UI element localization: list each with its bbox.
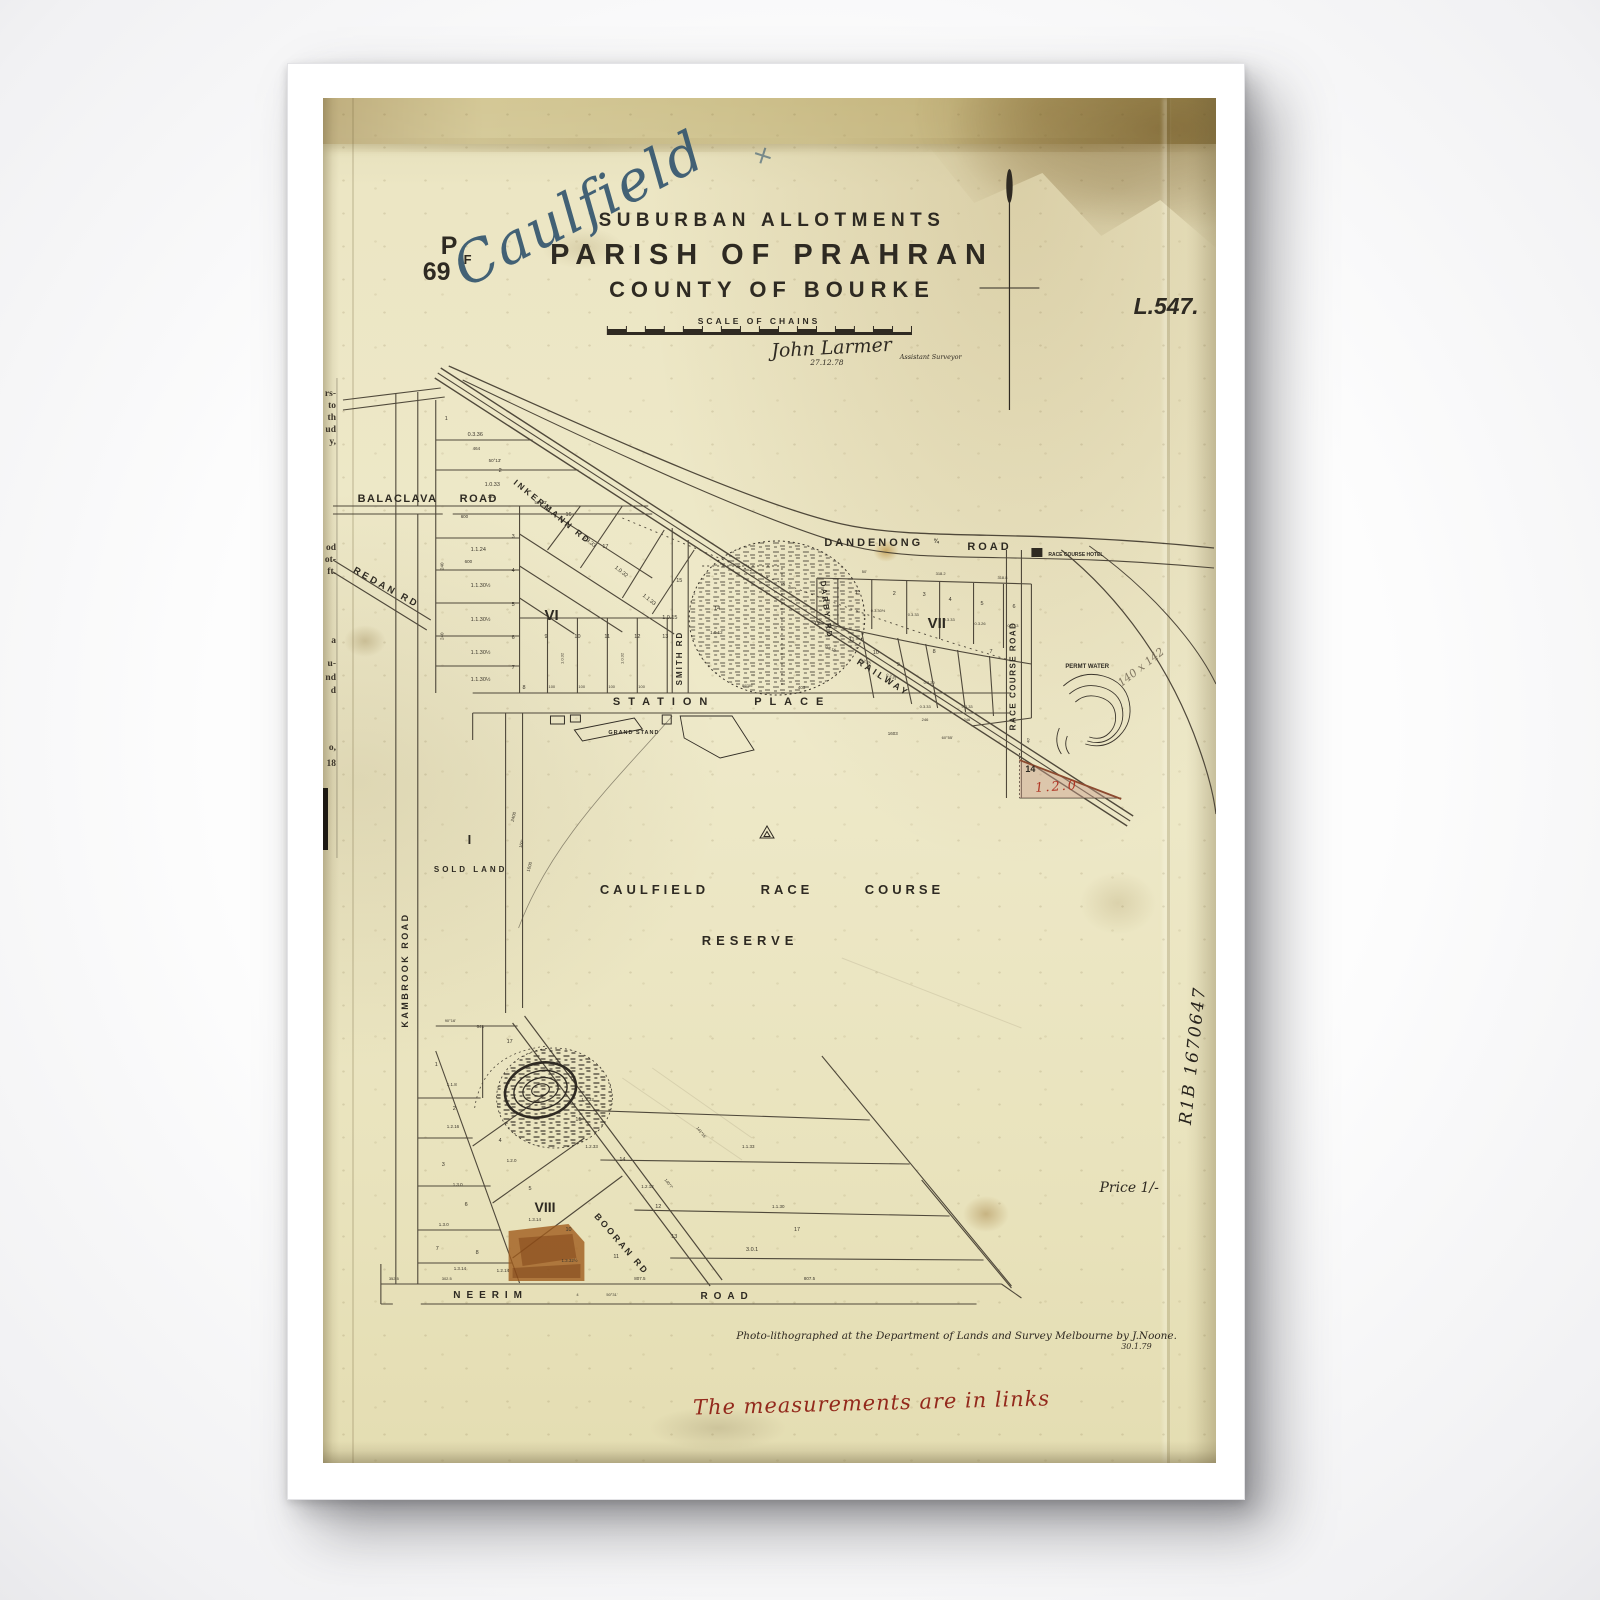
hotel-building	[1031, 548, 1042, 557]
lot-marker: 7	[512, 665, 515, 671]
road-race-course: RACE COURSE ROAD	[1008, 622, 1017, 731]
lot-marker: 100	[578, 684, 585, 689]
lot-marker: 1	[445, 416, 448, 422]
lot-marker: 1.1.30½	[471, 616, 491, 623]
lot-marker: 1.3.0	[453, 1182, 463, 1187]
litho-date: 30.1.79	[1121, 1342, 1151, 1351]
lot-marker: 11	[613, 1254, 619, 1260]
road-inkerman: INKERMANN RD	[512, 477, 593, 546]
scale-bar-segment	[721, 329, 740, 333]
lot-marker: 2400	[510, 811, 518, 822]
margin-text-fragments: rs-tothudy,odot-ft.au-nddo,18	[325, 389, 337, 769]
margin-fragment: o,	[329, 743, 336, 753]
lot-marker: 14	[714, 606, 720, 612]
lot-marker: 2	[453, 1106, 456, 1112]
lot-marker: 1.1.8	[447, 1082, 457, 1087]
price-note: Price 1/-	[1099, 1180, 1160, 1196]
margin-fragment: nd	[325, 673, 336, 683]
lot-marker: 50°31'	[606, 1292, 617, 1297]
lot-marker: 8	[933, 649, 936, 655]
lot-marker: 1.1.30½	[471, 676, 491, 683]
label-grand-stand: GRAND STAND	[608, 730, 659, 736]
lot-marker: 5	[981, 601, 984, 607]
lot-marker: 600	[461, 514, 469, 519]
lot-marker: 1.0.15	[662, 615, 677, 621]
lot14-area-red: 1.2.0	[1035, 778, 1079, 796]
lot-marker: 7	[990, 649, 993, 655]
lot-marker: 4	[576, 1292, 579, 1297]
road-booran: BOORAN RD	[592, 1211, 651, 1276]
lot-marker: 12	[655, 1204, 661, 1210]
scale-bar-segment	[759, 329, 778, 333]
lot-marker: 100	[638, 684, 645, 689]
lot-marker: 6	[512, 635, 515, 641]
lot-marker: 15	[676, 578, 682, 584]
lot-marker: 1.2.16	[447, 1124, 460, 1129]
page: { "document": { "handwritten_title": "Ca…	[0, 0, 1600, 1600]
lot-markers-layer: 10.3.3646450°13'21.0.3322250°13'60031.1.…	[389, 416, 1031, 1297]
lot-marker: 4	[512, 568, 515, 574]
lot-marker: 0.3.33	[944, 617, 956, 622]
title-line1: SUBURBAN ALLOTMENTS	[599, 210, 946, 231]
lot-marker: 60°55'	[942, 735, 953, 740]
lot-marker: 3	[512, 534, 515, 540]
lot-marker: 6	[465, 1202, 468, 1208]
road-balaclava: BALACLAVA ROAD	[358, 493, 498, 505]
lot-marker: 1.3.14	[529, 1217, 542, 1222]
lot-marker: 2	[499, 468, 502, 474]
handwritten-cross: +	[748, 138, 778, 173]
lot-marker: 12	[814, 621, 820, 627]
lot-marker: 1.2.32	[581, 1097, 594, 1102]
lot-marker: 1.1.33	[742, 1144, 755, 1149]
scale-bar-segment	[645, 329, 664, 333]
lot-marker: 1603	[888, 731, 898, 736]
lot-marker: 240	[440, 562, 445, 570]
lot-marker: 141°16'	[695, 1126, 707, 1140]
margin-fragment: ud	[325, 425, 336, 435]
lot-marker: 1.1.24	[471, 547, 486, 553]
margin-fragment: u-	[328, 659, 336, 669]
lot-marker: 11	[849, 637, 855, 643]
survey-date: 27.12.78	[809, 358, 844, 367]
lot-marker: 17	[507, 1039, 513, 1045]
lot-marker: 13	[662, 634, 668, 640]
lot-marker: 160°	[518, 839, 525, 849]
lot-marker: 464	[473, 446, 481, 451]
lot-marker: 17	[794, 1227, 800, 1233]
margin-fragment: od	[326, 543, 337, 553]
lot-marker: 50°13'	[535, 500, 548, 505]
survey-map: Caulfield + SUBURBAN ALLOTMENTS PARISH O…	[323, 98, 1216, 1463]
road-neerim-road-word: ROAD	[700, 1291, 753, 1302]
lot-marker: 1.0.32	[559, 652, 564, 664]
margin-fragment: to	[328, 401, 336, 411]
lot-marker: 2	[893, 591, 896, 597]
margin-fragment: rs-	[325, 389, 336, 399]
lot-marker: 15	[575, 1117, 581, 1123]
margin-black-bar	[323, 788, 328, 850]
lot-marker: 1.0.33	[485, 482, 500, 488]
lot-marker: 5	[512, 602, 515, 608]
road-redan: REDAN RD	[351, 565, 421, 611]
lot-marker: 240	[440, 632, 445, 640]
margin-fragment: th	[328, 413, 337, 423]
lot-marker: 807.5	[634, 1276, 646, 1281]
lot-marker: 1.1.30	[772, 1204, 785, 1209]
lot-marker: 0.3.26	[975, 621, 987, 626]
lot-marker: 140°7'	[663, 1178, 674, 1190]
measurement-note-red: The measurements are in links	[693, 1386, 1051, 1419]
lot-marker: 246	[964, 717, 971, 722]
side-reference: R1B 1670647	[1176, 985, 1210, 1126]
scale-bar-segment	[683, 329, 702, 333]
lot-marker: 600	[465, 559, 473, 564]
lot-marker: 100	[608, 684, 615, 689]
label-sold-land: SOLD LAND	[434, 865, 507, 874]
lot-marker: 4	[949, 597, 952, 603]
lot-marker: 11	[604, 634, 610, 640]
lot-marker: 1.2.33	[585, 1144, 598, 1149]
lot-marker: 807.5	[804, 1276, 816, 1281]
label-lot14: 14	[1025, 764, 1035, 774]
lot-marker: 100	[548, 684, 555, 689]
lot-marker: 9	[545, 634, 548, 640]
lot-marker: 1	[435, 1062, 438, 1068]
lot-marker: 318.8	[997, 575, 1008, 580]
label-hotel: RACE COURSE HOTEL	[1048, 552, 1103, 558]
plan-suffix: F	[464, 252, 472, 267]
lot-marker: 90°16'	[445, 1018, 456, 1023]
lot-marker: 641	[477, 1024, 485, 1029]
surveyor-role: Assistant Surveyor	[899, 353, 963, 361]
lot-marker: 40'	[1025, 738, 1030, 743]
margin-fragment: ot-	[325, 555, 336, 565]
north-line	[980, 169, 1040, 410]
lot-marker: 6	[1012, 604, 1015, 610]
lot-marker: 0.3.33	[908, 612, 920, 617]
lot-marker: 0.3.20	[924, 680, 936, 685]
label-race-course: CAULFIELD RACE COURSE	[600, 882, 944, 897]
lot-marker: 3	[442, 1162, 445, 1168]
scale-bar-segment	[873, 329, 892, 333]
road-station-place: STATION PLACE	[613, 696, 831, 708]
margin-fragment: d	[331, 686, 337, 696]
lot-marker: 0.3.30½	[871, 608, 886, 613]
lot-marker: 1	[855, 590, 858, 596]
margin-fragment: ft.	[327, 567, 336, 577]
margin-fragment: y,	[329, 437, 336, 447]
lot-marker: 1.3.14	[454, 1266, 467, 1271]
road-linework	[333, 366, 1216, 1304]
section-vi: VI	[545, 607, 559, 624]
lot-marker: 16	[565, 512, 571, 518]
plan-prefix: P	[441, 232, 458, 260]
lot-marker: 246	[922, 717, 929, 722]
lot-marker: 1.2.14	[497, 1268, 510, 1273]
lot-marker: 1.3.0	[439, 1222, 449, 1227]
margin-fragment: 18	[327, 759, 337, 769]
lot-marker: 50'	[862, 569, 867, 574]
lot-marker: 0.3.36	[468, 432, 483, 438]
lot-marker: 12	[634, 634, 640, 640]
lot-marker: 1.0.32	[619, 652, 624, 664]
lot-marker: 10	[565, 1227, 571, 1233]
label-reserve: RESERVE	[702, 933, 799, 948]
title-line3: COUNTY OF BOURKE	[609, 277, 935, 302]
lot-marker: 17	[602, 544, 608, 550]
permanent-water	[1057, 674, 1130, 754]
lot-marker: 1.1.30½	[471, 582, 491, 589]
lot-marker: 1.3.32½	[561, 1257, 577, 1263]
lot-marker: 1.1.30½	[471, 649, 491, 656]
road-dandenong: DANDENONG	[824, 537, 923, 549]
lot-marker: 1.1.33	[641, 593, 657, 607]
lot-marker: 13	[671, 1234, 677, 1240]
lot-marker: 1.2.12	[641, 1184, 654, 1189]
road-dandenong-road-word: ROAD	[967, 541, 1011, 553]
lot-marker: 10	[574, 634, 580, 640]
lot-marker: 50°13'	[489, 458, 502, 463]
record-number: L.547.	[1134, 293, 1199, 319]
highlighted-allotment	[509, 1224, 585, 1281]
road-kambrook: KAMBROOK ROAD	[400, 912, 410, 1027]
lot-marker: 9	[897, 662, 900, 668]
lot-marker: 10	[873, 650, 879, 656]
lot-marker: 0.3.13	[1007, 623, 1019, 628]
lot-marker: 8	[476, 1250, 479, 1256]
scale-bar-segment	[835, 329, 854, 333]
lot-marker: 8	[523, 685, 526, 691]
lot-marker: 7	[436, 1246, 439, 1252]
lot-marker: 318.2	[936, 571, 947, 576]
plan-number: 69	[423, 258, 451, 286]
lot-marker: 3.0.1	[746, 1247, 758, 1253]
road-smith: SMITH RD	[675, 631, 684, 686]
road-neerim: NEERIM	[453, 1290, 528, 1301]
scale-bar-segment	[607, 329, 626, 333]
pencil-note: 140 x 142	[1115, 645, 1166, 689]
lot-marker: 1.0.32	[613, 565, 629, 579]
lot-marker: 352.5	[389, 1276, 400, 1281]
margin-fragment: a	[331, 636, 336, 646]
paper-scratches	[622, 958, 1021, 1160]
lot-marker: 5	[529, 1186, 532, 1192]
scale-bar	[607, 326, 911, 335]
lot-marker: 4	[499, 1138, 502, 1144]
grand-stand-buildings	[550, 715, 754, 758]
lot-marker: 1.0.12	[710, 630, 723, 635]
road-dandenong-fraction: ¾	[934, 538, 940, 545]
lot-marker: 403	[798, 685, 806, 690]
lot-marker: 3	[923, 592, 926, 598]
litho-credit: Photo-lithographed at the Department of …	[735, 1330, 1177, 1342]
map-sheet: Caulfield + SUBURBAN ALLOTMENTS PARISH O…	[323, 98, 1216, 1463]
lot-marker: 1.2.0	[507, 1158, 517, 1163]
scale-label: SCALE OF CHAINS	[698, 316, 821, 326]
scale-bar-segment	[797, 329, 816, 333]
lot-marker: 0.3.33	[962, 704, 974, 709]
lot-marker: 1600	[526, 861, 534, 872]
section-i: I	[468, 832, 472, 847]
lot-marker: 222	[488, 494, 496, 499]
framed-print: Caulfield + SUBURBAN ALLOTMENTS PARISH O…	[287, 63, 1245, 1500]
title-line2: PARISH OF PRAHRAN	[550, 239, 994, 271]
survey-marker-triangle	[760, 826, 774, 838]
lot-marker: 0.3.33	[920, 704, 932, 709]
lot-marker: 89°55'	[742, 683, 753, 688]
lot-marker: 302.5	[442, 1276, 453, 1281]
lot-marker: 14	[619, 1157, 625, 1163]
label-perm-water: PERMT WATER	[1065, 664, 1109, 670]
section-viii: VIII	[535, 1199, 556, 1215]
